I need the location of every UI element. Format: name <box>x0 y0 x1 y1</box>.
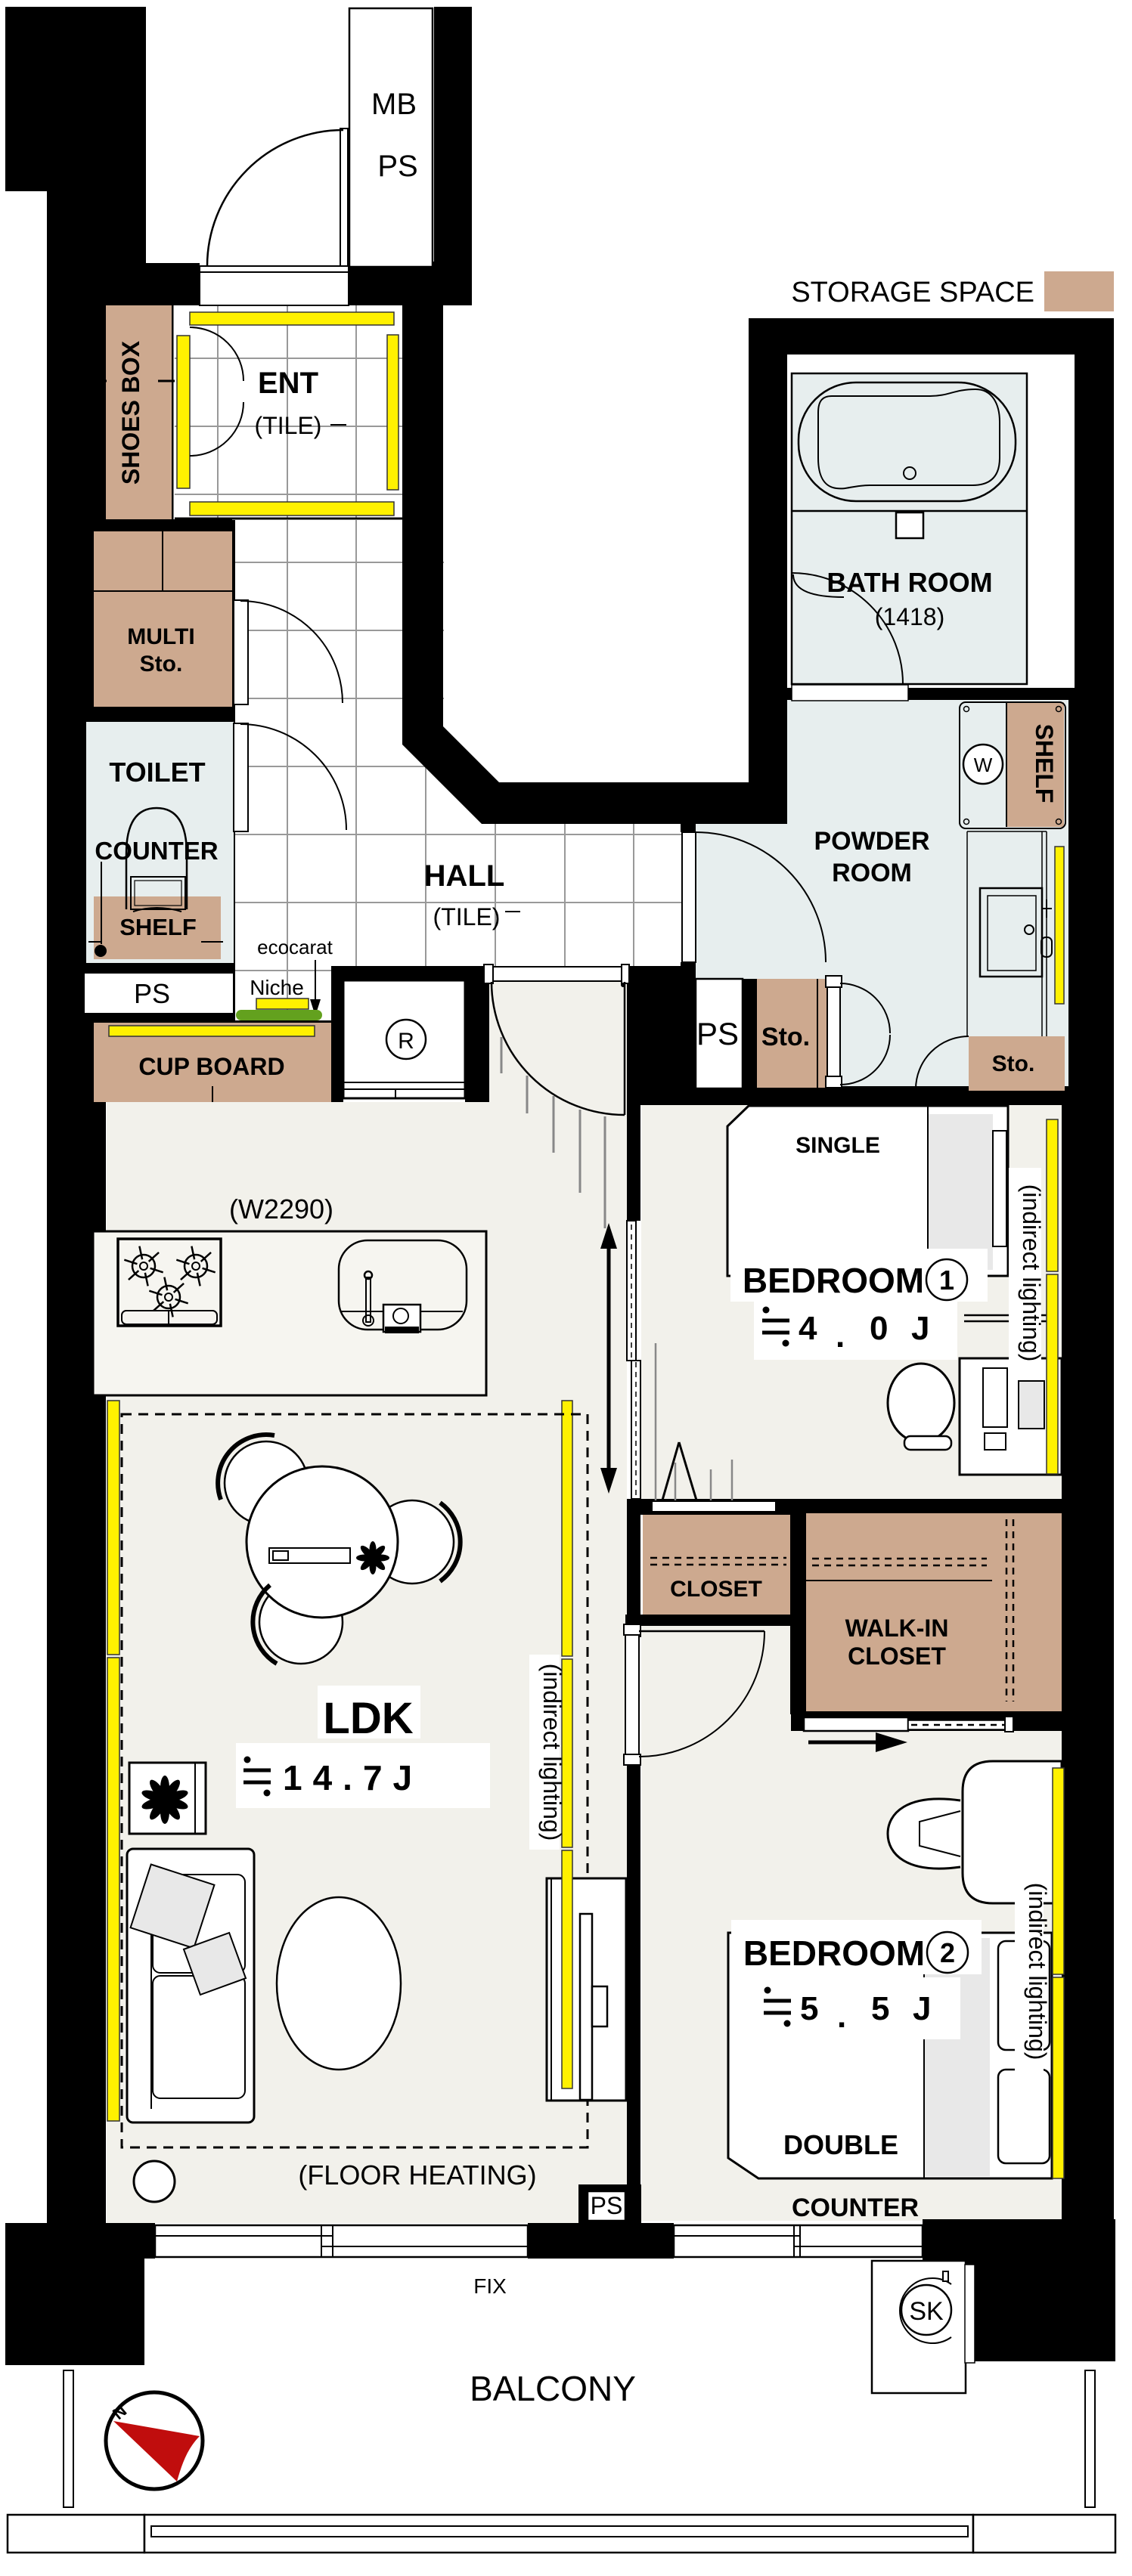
svg-text:W: W <box>974 754 993 776</box>
svg-text:FIX: FIX <box>473 2274 507 2298</box>
svg-text:5: 5 <box>871 1990 889 2027</box>
svg-text:COUNTER: COUNTER <box>792 2194 919 2222</box>
svg-text:SHELF: SHELF <box>119 914 197 940</box>
svg-text:MULTI: MULTI <box>127 624 194 649</box>
svg-text:SHELF: SHELF <box>1031 724 1058 803</box>
svg-text:0: 0 <box>870 1310 888 1347</box>
svg-text:(1418): (1418) <box>875 603 945 630</box>
svg-text:(FLOOR HEATING): (FLOOR HEATING) <box>298 2160 536 2191</box>
svg-text:5: 5 <box>800 1990 818 2027</box>
svg-text:PS: PS <box>134 978 170 1009</box>
svg-text:PS: PS <box>591 2192 623 2219</box>
svg-text:J: J <box>911 1310 929 1347</box>
svg-text:(indirect lighting): (indirect lighting) <box>1018 1184 1045 1362</box>
svg-text:BALCONY: BALCONY <box>470 2369 636 2408</box>
svg-text:HALL: HALL <box>424 859 505 893</box>
svg-text:POWDER: POWDER <box>814 827 930 856</box>
svg-text:14.7J: 14.7J <box>283 1758 423 1797</box>
svg-text:COUNTER: COUNTER <box>95 837 218 865</box>
svg-text:Sto.: Sto. <box>992 1051 1035 1076</box>
svg-text:ENT: ENT <box>258 367 318 400</box>
svg-text:STORAGE SPACE: STORAGE SPACE <box>791 277 1034 308</box>
svg-text:Sto.: Sto. <box>761 1023 810 1051</box>
svg-text:WALK-IN: WALK-IN <box>845 1615 949 1642</box>
svg-text:Niche: Niche <box>250 976 304 999</box>
svg-text:.: . <box>837 1998 846 2035</box>
svg-text:.: . <box>836 1317 845 1355</box>
svg-text:1: 1 <box>939 1265 954 1296</box>
svg-text:(TILE): (TILE) <box>255 412 322 439</box>
svg-text:DOUBLE: DOUBLE <box>783 2129 898 2160</box>
svg-text:BATH ROOM: BATH ROOM <box>827 567 992 598</box>
svg-text:ROOM: ROOM <box>832 859 912 887</box>
svg-text:(indirect lighting): (indirect lighting) <box>1024 1883 1051 2060</box>
svg-text:PS: PS <box>696 1016 739 1051</box>
svg-text:SHOES BOX: SHOES BOX <box>117 340 144 485</box>
svg-text:Sto.: Sto. <box>140 652 183 677</box>
svg-text:(indirect lighting): (indirect lighting) <box>538 1664 566 1841</box>
svg-text:ecocarat: ecocarat <box>257 936 333 958</box>
svg-text:2: 2 <box>940 1937 955 1968</box>
svg-text:LDK: LDK <box>323 1694 413 1743</box>
svg-text:MB: MB <box>371 88 417 121</box>
svg-text:CUP BOARD: CUP BOARD <box>138 1053 284 1080</box>
svg-text:4: 4 <box>799 1310 817 1347</box>
svg-text:BEDROOM: BEDROOM <box>743 1261 924 1300</box>
svg-text:PS: PS <box>377 150 417 183</box>
svg-text:SK: SK <box>909 2297 944 2326</box>
svg-text:SINGLE: SINGLE <box>796 1133 880 1158</box>
svg-text:CLOSET: CLOSET <box>670 1577 762 1602</box>
svg-text:(W2290): (W2290) <box>229 1194 333 1225</box>
svg-text:(TILE): (TILE) <box>433 903 501 930</box>
svg-text:R: R <box>398 1029 414 1054</box>
svg-text:BEDROOM: BEDROOM <box>743 1934 925 1973</box>
svg-text:TOILET: TOILET <box>109 757 205 788</box>
svg-text:CLOSET: CLOSET <box>848 1643 946 1670</box>
svg-text:J: J <box>913 1990 931 2027</box>
